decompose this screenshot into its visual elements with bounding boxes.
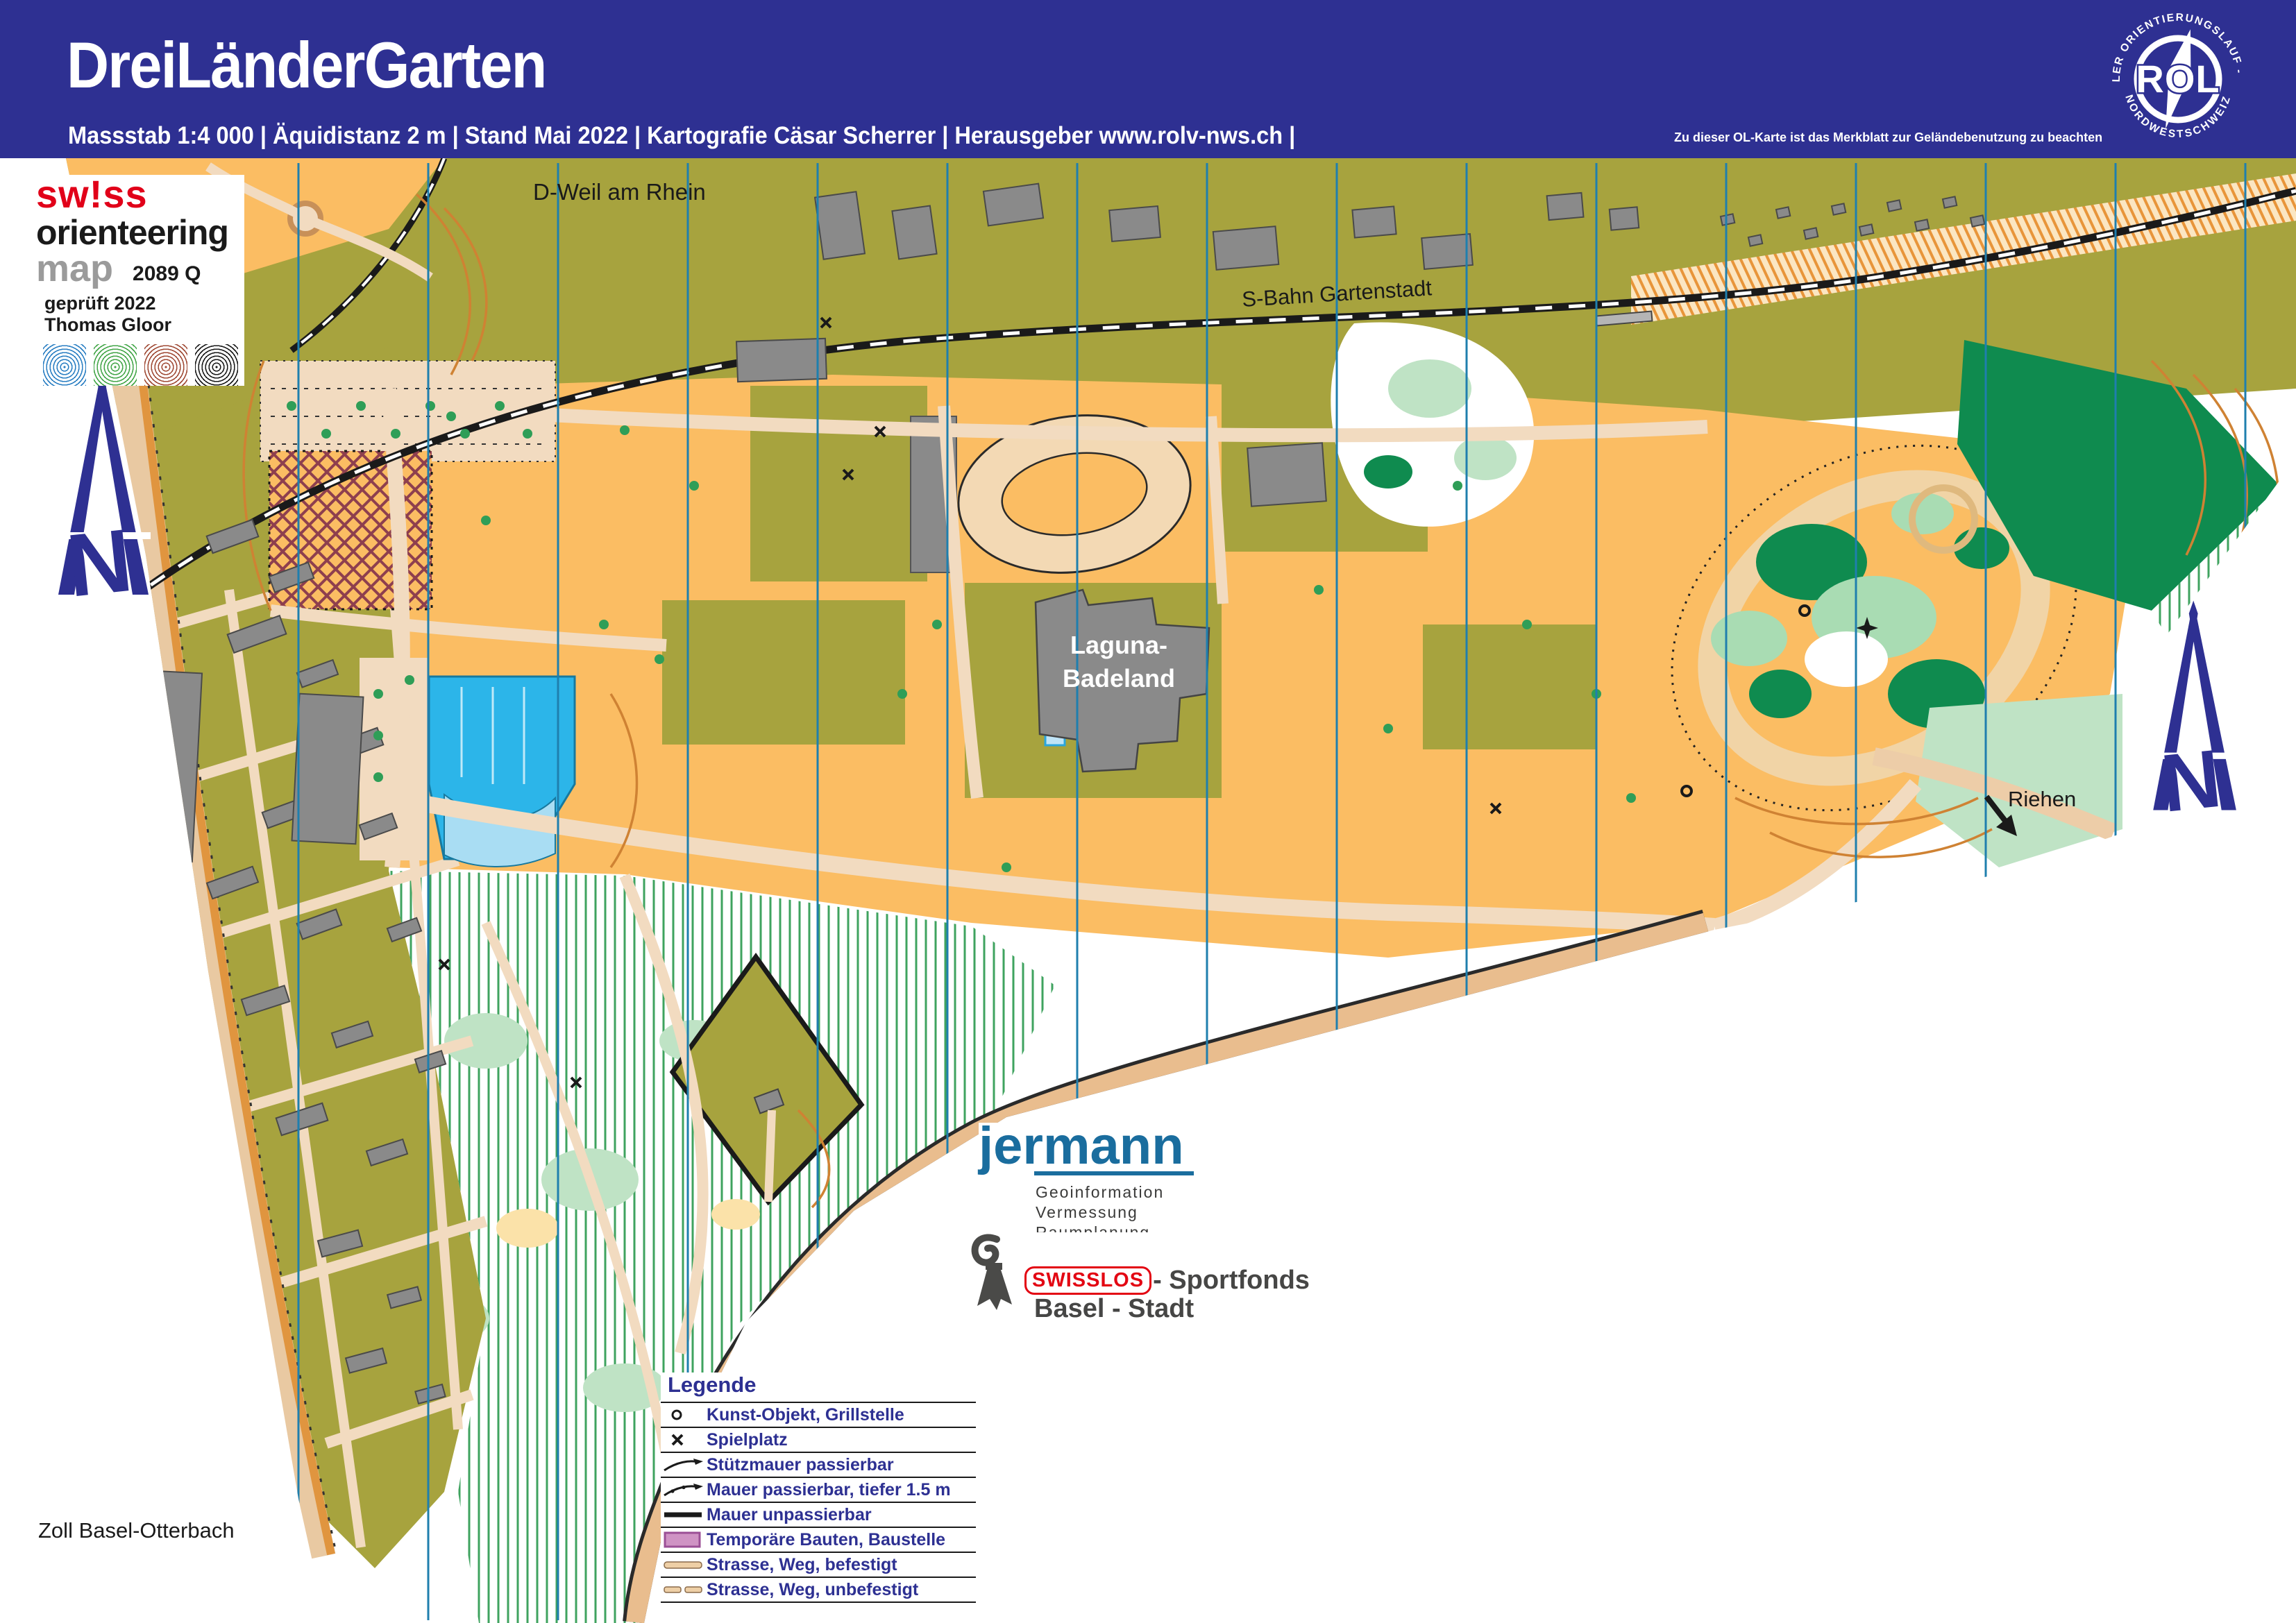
label-laguna-line1: Laguna- — [1070, 631, 1167, 659]
temporary-building-swatch — [661, 1531, 707, 1549]
label-riehen: Riehen — [2008, 787, 2076, 811]
jermann-name: jermann — [979, 1123, 1194, 1170]
jermann-service: Geoinformation — [1036, 1182, 1194, 1203]
som-map: map — [36, 250, 113, 287]
swatch-red — [144, 344, 187, 386]
map-sheet: D-Weil am Rhein S-Bahn Gartenstadt Lagun… — [0, 0, 2296, 1623]
wall-passable-icon — [661, 1481, 707, 1498]
legend-row: Mauer passierbar, tiefer 1.5 m — [661, 1477, 976, 1502]
map-metadata: Massstab 1:4 000 | Äquidistanz 2 m | Sta… — [68, 122, 1295, 150]
legend-row: Stützmauer passierbar — [661, 1452, 976, 1477]
swiss-orienteering-logo: sw!ss orienteering map 2089 Q geprüft 20… — [36, 175, 244, 386]
swatch-black — [195, 344, 238, 386]
wall-impassable-icon — [661, 1506, 707, 1523]
map: D-Weil am Rhein S-Bahn Gartenstadt Lagun… — [0, 0, 2296, 1623]
legend-row: Spielplatz — [661, 1427, 976, 1452]
legend-row: Mauer unpassierbar — [661, 1502, 976, 1527]
legend-row: Temporäre Bauten, Baustelle — [661, 1527, 976, 1552]
label-zoll-basel-otterbach: Zoll Basel-Otterbach — [38, 1518, 235, 1543]
swisslos-suffix: - Sportfonds — [1153, 1266, 1310, 1295]
som-orienteering: orienteering — [36, 215, 244, 250]
label-weil-am-rhein: D-Weil am Rhein — [533, 179, 706, 205]
map-checker: Thomas Gloor — [44, 316, 244, 334]
legend-row: Strasse, Weg, befestigt — [661, 1552, 976, 1577]
svg-text:N: N — [2157, 732, 2225, 829]
basel-crozier-icon — [966, 1232, 1020, 1313]
rolv-letters: ROL — [2136, 57, 2220, 101]
jermann-service: Vermessung — [1036, 1203, 1194, 1223]
legend-row: Kunst-Objekt, Grillstelle — [661, 1402, 976, 1427]
swisslos-basel-stadt: Basel - Stadt — [1034, 1294, 1310, 1324]
retaining-wall-icon — [661, 1456, 707, 1473]
usage-note: Zu dieser OL-Karte ist das Merkblatt zur… — [1674, 130, 2102, 145]
map-terrain — [0, 0, 2296, 1623]
art-object-icon — [661, 1407, 707, 1423]
label-laguna-line2: Badeland — [1063, 664, 1175, 692]
swatch-green — [94, 344, 137, 386]
svg-text:N: N — [62, 511, 137, 616]
legend-title: Legende — [661, 1373, 976, 1402]
road-unpaved-icon — [661, 1581, 707, 1598]
som-swiss: sw!ss — [36, 175, 244, 214]
page-title: DreiLänderGarten — [67, 28, 546, 103]
playground-icon — [661, 1431, 707, 1448]
jermann-logo: jermann Geoinformation Vermessung Raumpl… — [979, 1123, 1194, 1243]
print-test-swatches — [43, 344, 244, 386]
rolv-logo: REGIONALER ORIENTIERUNGSLAUF - VERBAND N… — [2103, 1, 2253, 155]
road-paved-icon — [661, 1556, 707, 1573]
legend-row: Strasse, Weg, unbefestigt — [661, 1577, 976, 1601]
swisslos-logo: SWISSLOS - Sportfonds Basel - Stadt — [966, 1232, 1310, 1324]
header-bar: DreiLänderGarten Massstab 1:4 000 | Äqui… — [0, 0, 2296, 158]
swisslos-brand: SWISSLOS — [1024, 1266, 1151, 1295]
swatch-blue — [43, 344, 86, 386]
map-checked-year: geprüft 2022 — [44, 294, 244, 313]
legend: Legende Kunst-Objekt, Grillstelle Spielp… — [661, 1373, 976, 1603]
map-code: 2089 Q — [133, 264, 201, 287]
